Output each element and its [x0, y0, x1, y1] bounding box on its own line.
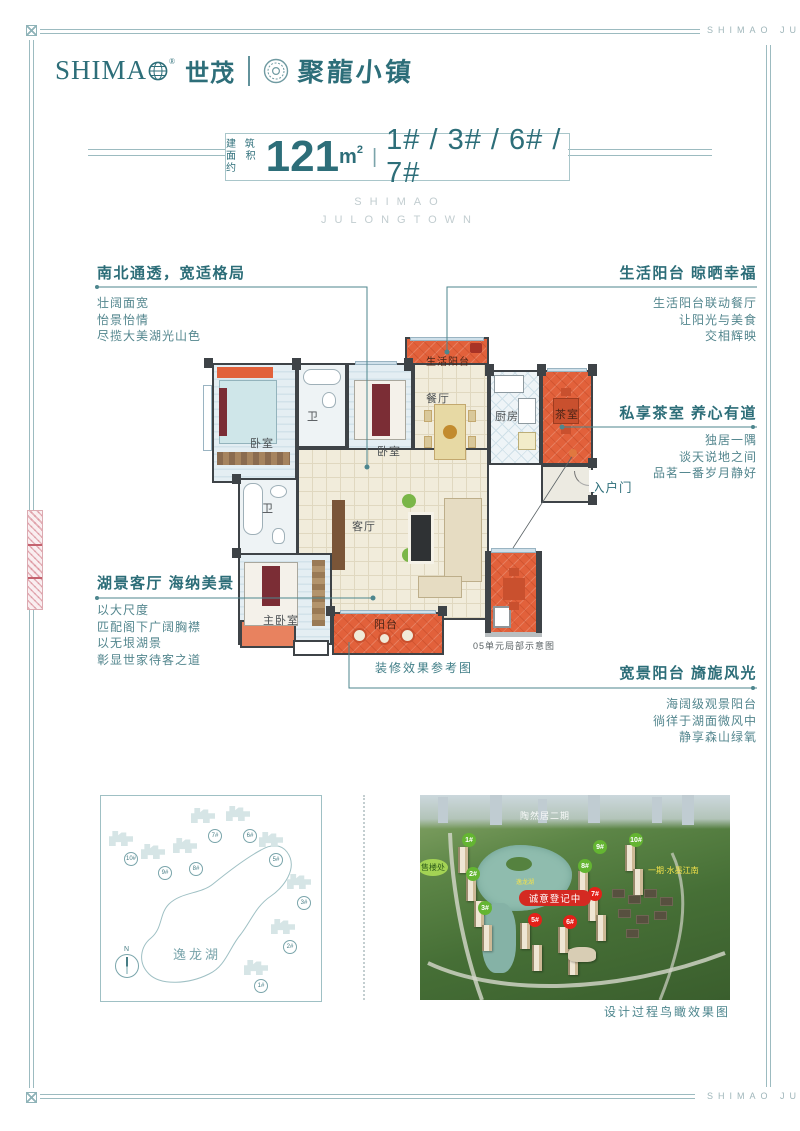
callout-line: 徜徉于湖面微风中 [653, 714, 757, 728]
wall-segment [438, 606, 447, 616]
bathtub-icon [243, 483, 263, 535]
building-number: 8# [189, 862, 203, 876]
window-tea [547, 368, 587, 372]
sofa-icon [418, 576, 462, 598]
bed-runner-icon [219, 388, 227, 436]
callout-north-south-title: 南北通透，宽适格局 [97, 262, 246, 283]
bed-blanket-icon [372, 384, 390, 436]
watermark-bottom: SHIMAO JU [707, 1091, 800, 1101]
room-label-bath2: 卫 [262, 500, 274, 516]
unit-diagram-caption: 05单元局部示意图 [459, 639, 569, 652]
aerial-lake-label: 逸龙湖 [516, 877, 534, 886]
callout-line: 彰显世家待客之道 [97, 653, 201, 667]
coffee-table-icon [408, 512, 434, 564]
room-label-balcony: 阳台 [374, 616, 398, 632]
area-value: 121 [266, 135, 339, 179]
callout-lake-living-title: 湖景客厅 海纳美景 [97, 572, 235, 593]
watermark-top: SHIMAO JU [707, 25, 800, 35]
figure-separator [363, 795, 365, 1000]
registered-mark: ® [169, 57, 176, 66]
callout-line: 品茗一番岁月静好 [653, 466, 757, 480]
wall-segment [588, 495, 597, 505]
wall-segment [326, 606, 335, 616]
registration-banner: 诚意登记中 [519, 890, 591, 906]
bed-blanket-icon [262, 566, 280, 606]
wall-segment [588, 458, 597, 468]
marker-red: 6# [563, 915, 577, 929]
building-number: 9# [158, 866, 172, 880]
sink-icon [518, 432, 536, 450]
plaid-ribbon-decoration [27, 510, 43, 610]
side-project-label: 一期·水墨江南 [648, 865, 699, 876]
callout-line: 交相辉映 [705, 329, 757, 343]
wall-segment [204, 358, 213, 368]
balcony-chair-icon [352, 628, 367, 643]
frame-top-line-outer [40, 29, 700, 30]
building-number: 3# [297, 896, 311, 910]
shimao-chinese: 世茂 [185, 53, 235, 88]
room-label-master: 主卧室 [263, 612, 299, 628]
wall-segment [588, 364, 597, 376]
shimao-wordmark: SHIMA ® [55, 55, 176, 86]
decor-reference-caption: 装修效果参考图 [375, 659, 473, 676]
area-title-box: 建 筑 面积约 121 m2 | 1# / 3# / 6# / 7# [225, 133, 570, 181]
wardrobe-icon [312, 560, 325, 626]
callout-line: 以无垠湖景 [97, 636, 162, 650]
frame-bottom-line-outer [40, 1094, 695, 1095]
aerial-caption: 设计过程鸟瞰效果图 [560, 1003, 730, 1020]
room-label-dining: 餐厅 [426, 390, 450, 406]
callout-line: 匹配阁下广阔胸襟 [97, 620, 201, 634]
lake-label: 逸龙湖 [173, 944, 221, 963]
wardrobe-icon [217, 452, 290, 465]
chair-icon [424, 410, 432, 422]
flower-box-icon [470, 343, 482, 353]
wall-segment [232, 548, 241, 558]
callout-line: 海阔级观景阳台 [666, 697, 757, 711]
callout-tea-room-body: 独居一隅 谈天说地之间 品茗一番岁月静好 [653, 432, 757, 482]
callout-wide-balcony-title: 宽景阳台 旖旎风光 [619, 662, 757, 683]
area-prefix-top: 建 筑 [226, 139, 258, 150]
table-center-icon [443, 425, 457, 439]
marker-green: 1# [462, 833, 476, 847]
callout-tea-room-title: 私享茶室 养心有道 [619, 402, 757, 423]
room-label-living: 客厅 [352, 518, 376, 534]
marker-red: 5# [528, 913, 542, 927]
room-label-tea: 茶室 [555, 406, 579, 422]
phase2-label: 陶然居二期 [520, 809, 570, 822]
unit-diagram-chair-icon [509, 568, 519, 576]
aerial-rendering: 陶然居二期 一期·水墨江南 逸龙湖 售楼处 诚意登记中 1# 2# 3# 8# … [420, 795, 730, 1000]
unit-diagram-table-icon [503, 578, 525, 600]
building-number: 5# [269, 853, 283, 867]
callout-line: 独居一隅 [705, 433, 757, 447]
callout-line: 尽揽大美湖光山色 [97, 329, 201, 343]
room-label-bedroom1: 卧室 [250, 435, 274, 451]
wall-segment [292, 358, 301, 370]
compass-icon: N [115, 954, 139, 978]
door-opening [589, 470, 595, 492]
window-balcony [340, 610, 436, 614]
callout-lake-living-body: 以大尺度 匹配阁下广阔胸襟 以无垠湖景 彰显世家待客之道 [97, 602, 201, 668]
logo-divider [248, 56, 250, 86]
marker-green: 9# [593, 840, 607, 854]
brochure-page: SHIMAO JU SHIMAO JU SHIMA ® 世茂 聚龍小镇 [0, 0, 800, 1131]
area-unit-m: m [339, 146, 357, 168]
callout-line: 怡景怡情 [97, 313, 149, 327]
frame-corner-bottom-left-icon [26, 1092, 37, 1103]
brand-logo: SHIMA ® 世茂 聚龍小镇 [55, 52, 414, 89]
area-prefix: 建 筑 面积约 [226, 139, 259, 175]
balcony-chair-icon [400, 628, 415, 643]
callout-north-south-body: 壮阔面宽 怡景怡情 尽揽大美湖光山色 [97, 295, 201, 345]
marker-green: 10# [629, 833, 643, 847]
chair-icon [468, 436, 476, 448]
project-name: 聚龍小镇 [297, 52, 416, 89]
entry-text: 入户门 [592, 481, 633, 495]
tea-chair-icon [561, 388, 571, 396]
site-map: 10# 9# 8# 7# 6# 5# 3# 2# 1# 逸龙湖 N [100, 795, 322, 1002]
wall-segment [232, 474, 241, 484]
tea-chair-icon [561, 426, 571, 434]
title-rule-right-1 [568, 149, 712, 150]
marker-green: 2# [466, 867, 480, 881]
marker-green: 8# [578, 859, 592, 873]
stove-icon [518, 398, 536, 424]
room-label-bath1: 卫 [307, 408, 319, 424]
sofa-icon [444, 498, 482, 582]
wall-segment [404, 358, 413, 371]
frame-bottom-line-inner [40, 1098, 695, 1099]
compass-north-label: N [124, 946, 129, 953]
tv-cabinet-icon [332, 500, 345, 570]
frame-top-line-inner [40, 33, 700, 34]
unit-diagram-wall [485, 551, 491, 633]
wall-segment [537, 364, 546, 376]
cabinet-icon [494, 375, 524, 393]
callout-life-balcony-body: 生活阳台联动餐厅 让阳光与美食 交相辉映 [653, 295, 757, 345]
toilet-icon [322, 392, 336, 408]
area-prefix-bottom: 面积约 [226, 151, 259, 174]
window-life-balcony [410, 337, 484, 341]
unit-diagram-chair-icon [509, 602, 519, 610]
toilet-icon [272, 528, 285, 544]
unit-diagram-window [491, 548, 536, 553]
frame-corner-top-left-icon [26, 25, 37, 36]
subtitle-en-line1: SHIMAO [0, 196, 800, 208]
unit-diagram-base [485, 632, 542, 637]
area-unit-sup: 2 [357, 144, 363, 156]
seal-icon [263, 58, 289, 84]
room-label-bedroom2: 卧室 [377, 443, 401, 459]
compass-needle [126, 957, 128, 974]
window-bedroom2 [355, 361, 397, 365]
globe-icon [148, 61, 168, 81]
room-label-kitchen: 厨房 [495, 408, 519, 424]
callout-wide-balcony-body: 海阔级观景阳台 徜徉于湖面微风中 静享森山绿氧 [653, 696, 757, 746]
marker-green: 3# [478, 901, 492, 915]
area-unit: m2 [339, 146, 363, 169]
title-rule-left-2 [88, 155, 225, 156]
building-number: 2# [283, 940, 297, 954]
building-numbers: 1# / 3# / 6# / 7# [386, 124, 569, 190]
building-number: 10# [124, 852, 138, 866]
building-number: 1# [254, 979, 268, 993]
callout-life-balcony-title: 生活阳台 晾晒幸福 [619, 262, 757, 283]
bay-window-bedroom1 [203, 385, 212, 451]
unit-diagram-wall [536, 551, 542, 633]
plant-icon [402, 494, 416, 508]
balcony-table-icon [378, 632, 391, 645]
title-rule-left-1 [88, 149, 225, 150]
shimao-letters: SHIMA [55, 55, 147, 86]
room-label-life-balcony: 生活阳台 [426, 353, 470, 368]
building-number: 7# [208, 829, 222, 843]
callout-line: 生活阳台联动餐厅 [653, 296, 757, 310]
chair-icon [468, 410, 476, 422]
callout-line: 以大尺度 [97, 603, 149, 617]
title-rule-right-2 [568, 155, 712, 156]
callout-line: 让阳光与美食 [679, 313, 757, 327]
callout-line: 谈天说地之间 [679, 450, 757, 464]
sink-icon [270, 485, 287, 498]
wall-segment [485, 364, 494, 376]
rug-icon [217, 367, 273, 378]
ac-platform [293, 640, 329, 656]
building-number: 6# [243, 829, 257, 843]
subtitle-en-line2: JULONGTOWN [0, 214, 800, 226]
title-pipe: | [372, 146, 377, 169]
callout-line: 静享森山绿氧 [679, 730, 757, 744]
bathtub-icon [303, 369, 341, 385]
callout-line: 壮阔面宽 [97, 296, 149, 310]
chair-icon [424, 436, 432, 448]
